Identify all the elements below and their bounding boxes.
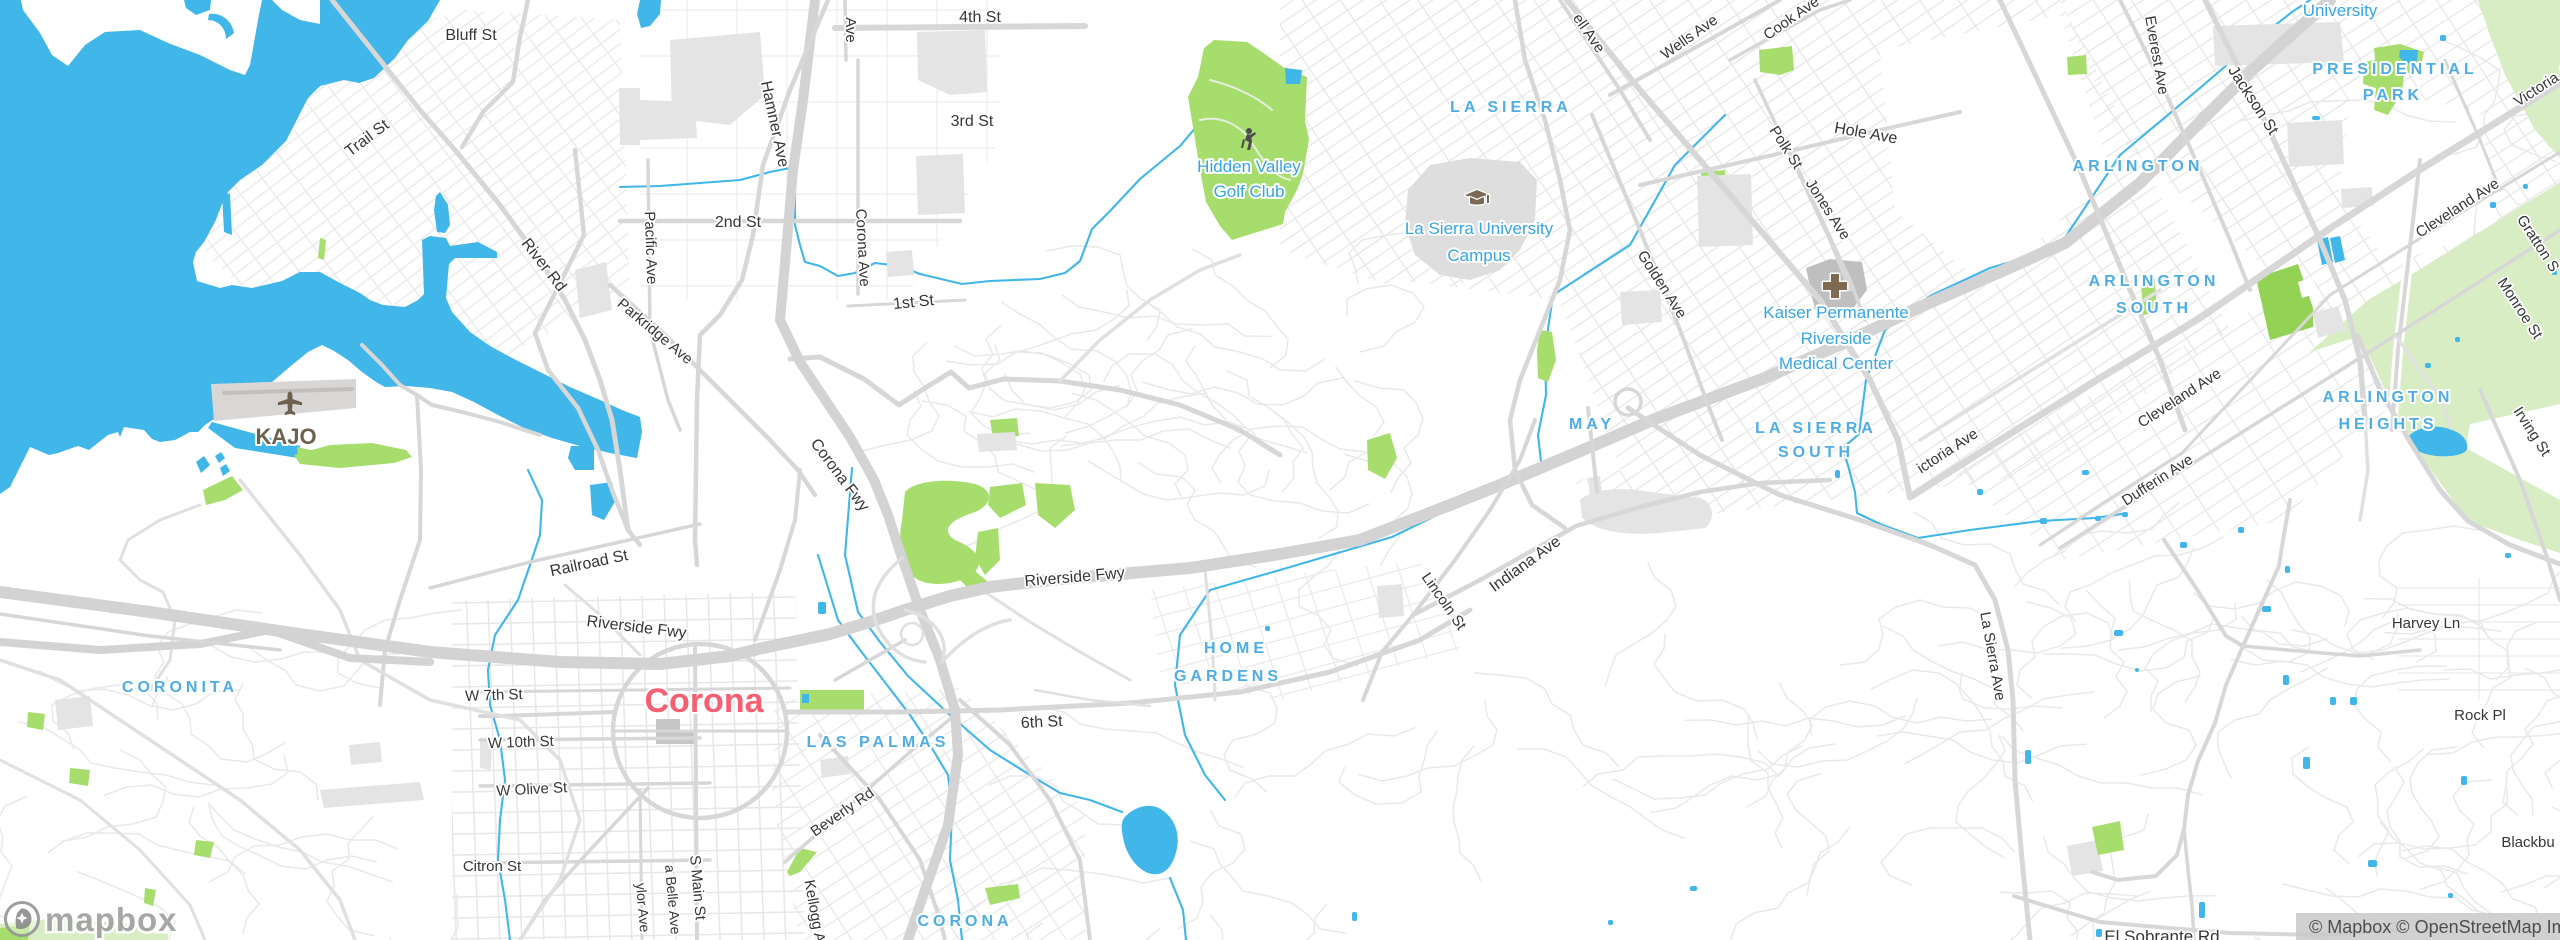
svg-text:W 7th St: W 7th St [465,686,524,705]
svg-text:ARLINGTON: ARLINGTON [2073,158,2204,175]
svg-text:ARLINGTON: ARLINGTON [2323,389,2454,406]
svg-text:GARDENS: GARDENS [1174,668,1282,685]
svg-text:KAJO: KAJO [255,424,316,449]
svg-text:Rock Pl: Rock Pl [2454,707,2506,724]
svg-text:HOME: HOME [1204,640,1268,657]
svg-text:La Sierra University: La Sierra University [1405,219,1554,238]
svg-text:CORONA: CORONA [917,913,1012,930]
svg-text:Medical Center: Medical Center [1779,354,1894,373]
svg-text:Riverside: Riverside [1801,329,1872,348]
svg-text:LAS PALMAS: LAS PALMAS [807,734,950,751]
svg-text:3rd St: 3rd St [951,113,994,130]
svg-text:SOUTH: SOUTH [1778,444,1854,461]
svg-text:Corona: Corona [645,682,765,720]
svg-text:Bluff St: Bluff St [445,27,497,44]
svg-text:4th St: 4th St [959,9,1001,26]
svg-text:LA SIERRA: LA SIERRA [1755,420,1877,437]
svg-text:SOUTH: SOUTH [2116,300,2192,317]
svg-text:Ave: Ave [842,17,859,43]
svg-text:LA SIERRA: LA SIERRA [1450,99,1572,116]
svg-text:PRESIDENTIAL: PRESIDENTIAL [2312,61,2477,78]
svg-text:Pacific Ave: Pacific Ave [641,211,661,285]
svg-text:Kaiser Permanente: Kaiser Permanente [1763,303,1909,322]
svg-text:MAY: MAY [1569,416,1615,433]
svg-text:Blackbu: Blackbu [2501,834,2554,851]
svg-text:HEIGHTS: HEIGHTS [2338,416,2437,433]
svg-text:mapbox: mapbox [45,901,178,938]
svg-text:6th St: 6th St [1020,713,1063,732]
svg-text:2nd St: 2nd St [715,214,762,231]
svg-text:W 10th St: W 10th St [488,733,555,752]
svg-text:Campus: Campus [1447,246,1510,265]
svg-text:University: University [2303,1,2378,20]
svg-text:ARLINGTON: ARLINGTON [2089,273,2220,290]
svg-text:Hidden Valley: Hidden Valley [1197,157,1301,176]
svg-text:Citron St: Citron St [463,858,522,875]
svg-text:© Mapbox © OpenStreetMap Imp: © Mapbox © OpenStreetMap Imp [2309,917,2560,937]
svg-text:CORONITA: CORONITA [122,679,238,696]
svg-text:Golf Club: Golf Club [1214,182,1285,201]
svg-text:El Sobrante Rd: El Sobrante Rd [2104,927,2219,940]
svg-text:Harvey Ln: Harvey Ln [2392,615,2460,632]
svg-text:PARK: PARK [2363,87,2423,104]
